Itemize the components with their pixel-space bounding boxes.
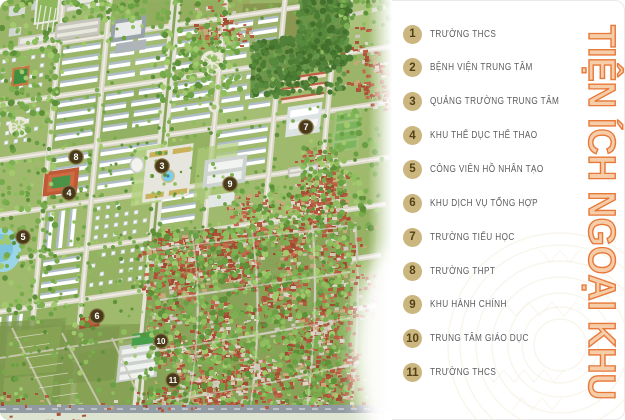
svg-text:TIỆN ÍCH NGOẠI KHU: TIỆN ÍCH NGOẠI KHU <box>580 25 624 400</box>
svg-text:4: 4 <box>66 188 71 198</box>
svg-text:10: 10 <box>157 337 166 346</box>
svg-text:3: 3 <box>159 161 164 171</box>
svg-text:8: 8 <box>73 152 78 162</box>
svg-text:11: 11 <box>169 376 178 385</box>
svg-text:7: 7 <box>303 122 308 132</box>
svg-text:6: 6 <box>94 311 99 321</box>
svg-text:5: 5 <box>20 232 25 242</box>
svg-text:9: 9 <box>227 179 232 189</box>
